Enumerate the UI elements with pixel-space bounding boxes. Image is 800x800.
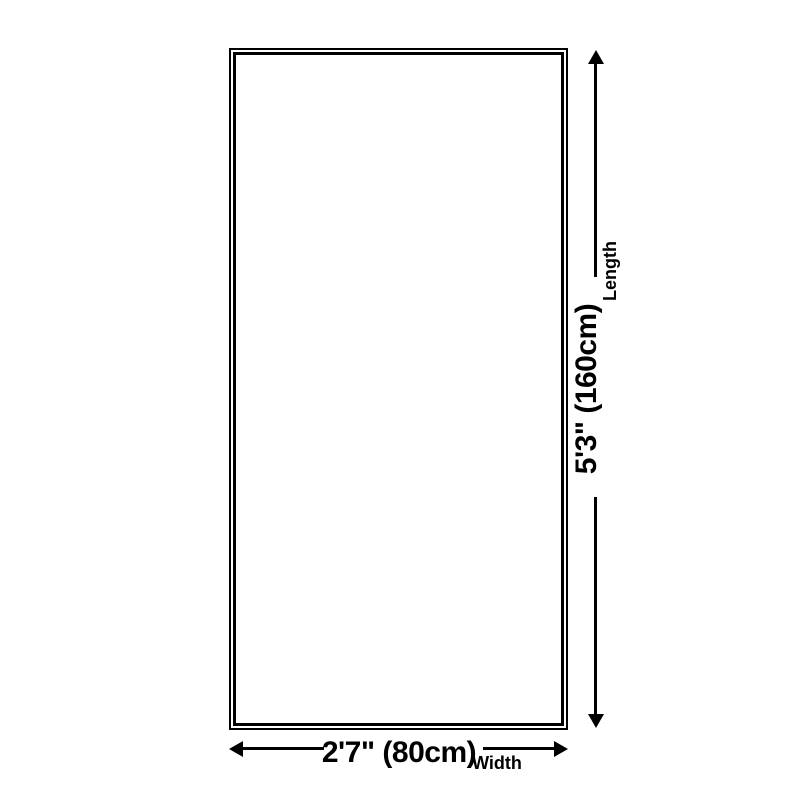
size-diagram: Length 5'3" (160cm) 2'7" (80cm) Width [0, 0, 800, 800]
rug-outline-outer [229, 48, 568, 730]
width-arrow-line-left [242, 747, 324, 750]
width-arrow-line-right [483, 747, 556, 750]
width-label: Width [472, 754, 522, 772]
length-value: 5'3" (160cm) [572, 304, 602, 474]
length-arrow-line-bottom [594, 497, 597, 716]
rug-outline-inner [233, 52, 564, 726]
arrow-left-icon [229, 741, 243, 757]
width-value: 2'7" (80cm) [322, 738, 476, 768]
length-arrow-line-top [594, 61, 597, 277]
arrow-down-icon [588, 714, 604, 728]
length-label: Length [601, 241, 619, 301]
arrow-right-icon [554, 741, 568, 757]
